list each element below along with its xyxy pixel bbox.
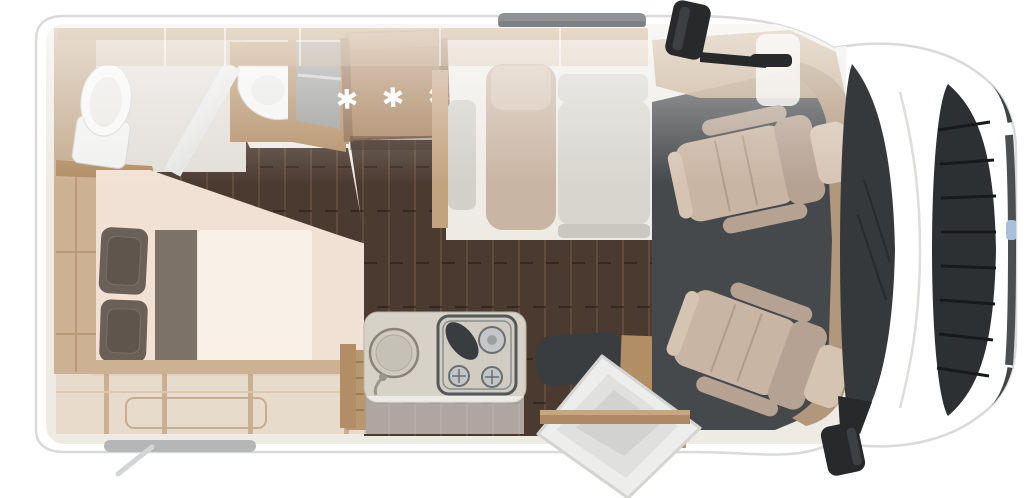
underbed-storage <box>56 374 366 434</box>
roof-transparency-veil <box>46 24 846 184</box>
pillow <box>99 299 148 363</box>
duvet <box>198 230 312 362</box>
bed-frame <box>92 360 368 376</box>
kitchen-side-panel <box>340 344 356 428</box>
kitchen-hob <box>438 316 516 394</box>
motorhome-floorplan: ✱ ✱ ✱ <box>0 0 1024 498</box>
bumper-trim-front <box>1009 135 1012 365</box>
pillow <box>98 227 148 295</box>
exterior-step <box>104 440 256 474</box>
kitchen-front-ghost <box>366 396 524 434</box>
bed-runner <box>155 230 197 362</box>
front-lamp <box>1006 220 1017 240</box>
kitchen <box>340 312 526 434</box>
